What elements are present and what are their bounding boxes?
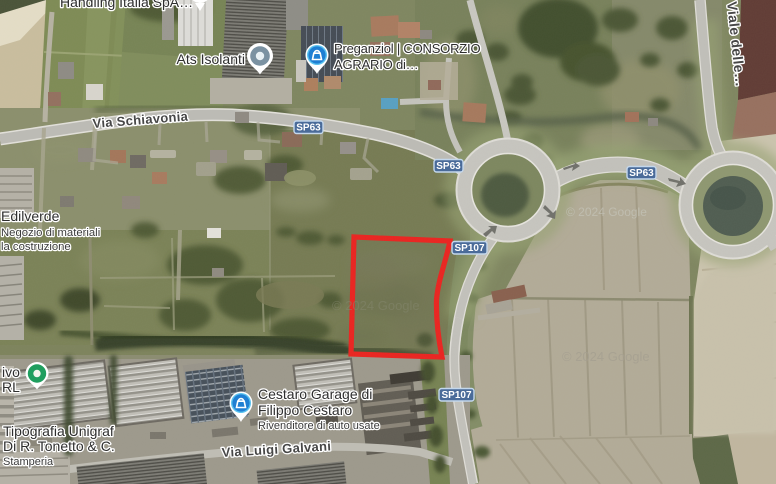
svg-text:ivo: ivo [2, 364, 20, 380]
svg-text:SP107: SP107 [454, 243, 484, 254]
svg-text:RL: RL [2, 379, 20, 395]
svg-text:SP63: SP63 [296, 123, 321, 134]
svg-text:AGRARIO di…: AGRARIO di… [334, 57, 418, 72]
svg-text:Tipografia Unigraf: Tipografia Unigraf [3, 423, 114, 439]
svg-text:Edilverde: Edilverde [1, 208, 60, 224]
svg-text:Di R. Tonetto & C.: Di R. Tonetto & C. [3, 438, 115, 454]
svg-text:la costruzione: la costruzione [1, 241, 71, 253]
svg-text:SP63: SP63 [436, 161, 461, 172]
svg-text:SP107: SP107 [441, 390, 471, 401]
svg-text:Stamperia: Stamperia [3, 456, 54, 468]
svg-text:SP63: SP63 [629, 168, 654, 179]
svg-text:Cestaro Garage di: Cestaro Garage di [258, 386, 372, 402]
svg-text:Ats Isolanti: Ats Isolanti [177, 51, 245, 67]
svg-text:Preganziol | CONSORZIO: Preganziol | CONSORZIO [334, 41, 480, 56]
svg-text:Negozio di materiali: Negozio di materiali [1, 227, 100, 239]
svg-text:Rivenditore di auto usate: Rivenditore di auto usate [258, 420, 380, 432]
svg-text:Filippo Cestaro: Filippo Cestaro [258, 402, 352, 418]
svg-text:Handling Italia SpA…: Handling Italia SpA… [60, 0, 193, 10]
